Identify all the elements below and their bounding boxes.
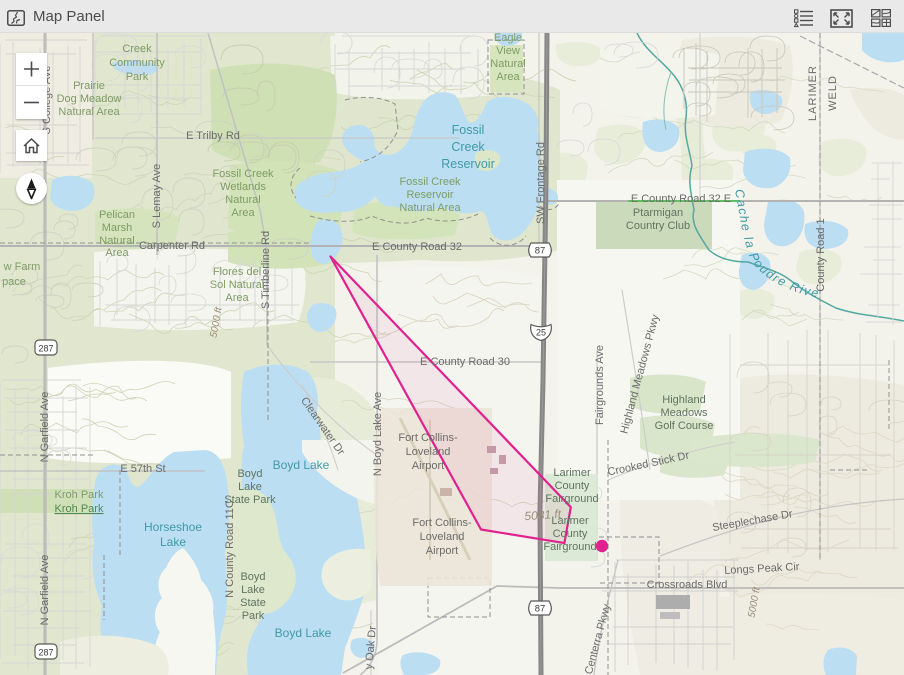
svg-text:Boyd: Boyd bbox=[237, 468, 262, 480]
svg-text:N Garfield Ave: N Garfield Ave bbox=[39, 392, 51, 463]
svg-text:Carpenter Rd: Carpenter Rd bbox=[139, 240, 205, 252]
svg-text:Community: Community bbox=[109, 57, 165, 69]
svg-text:E 57th St: E 57th St bbox=[120, 463, 165, 475]
svg-text:Kroh Park: Kroh Park bbox=[55, 489, 104, 501]
svg-text:Fairgrounds Ave: Fairgrounds Ave bbox=[594, 345, 606, 425]
svg-text:Prairie: Prairie bbox=[73, 80, 105, 92]
svg-text:State: State bbox=[240, 597, 266, 609]
svg-text:Fort Collins-: Fort Collins- bbox=[398, 432, 458, 444]
svg-text:Reservoir: Reservoir bbox=[406, 189, 453, 201]
svg-text:Area: Area bbox=[496, 71, 520, 83]
svg-text:287: 287 bbox=[38, 648, 53, 658]
svg-text:Larimer: Larimer bbox=[553, 467, 591, 479]
svg-text:87: 87 bbox=[535, 604, 546, 615]
svg-text:Natural Area: Natural Area bbox=[58, 106, 120, 118]
svg-text:Park: Park bbox=[242, 610, 265, 622]
svg-text:S Lemay Ave: S Lemay Ave bbox=[151, 164, 163, 229]
svg-text:SW Frontage Rd: SW Frontage Rd bbox=[535, 142, 547, 224]
svg-text:WELD: WELD bbox=[827, 75, 839, 111]
svg-text:Fossil Creek: Fossil Creek bbox=[399, 176, 461, 188]
svg-text:Flores del: Flores del bbox=[213, 266, 261, 278]
svg-text:Creek: Creek bbox=[451, 140, 485, 154]
svg-text:View: View bbox=[496, 45, 520, 57]
svg-text:Area: Area bbox=[231, 207, 255, 219]
svg-text:County Road 1: County Road 1 bbox=[815, 218, 827, 291]
svg-text:N County Road 11C: N County Road 11C bbox=[224, 500, 236, 598]
svg-text:Country Club: Country Club bbox=[626, 220, 690, 232]
svg-text:Airport: Airport bbox=[412, 460, 444, 472]
svg-text:Horseshoe: Horseshoe bbox=[144, 520, 202, 534]
svg-text:Crossroads Blvd: Crossroads Blvd bbox=[647, 579, 728, 591]
svg-text:County: County bbox=[553, 528, 588, 540]
svg-text:Ptarmigan: Ptarmigan bbox=[633, 207, 683, 219]
svg-text:E Trilby Rd: E Trilby Rd bbox=[186, 130, 240, 142]
svg-text:Golf Course: Golf Course bbox=[655, 420, 714, 432]
svg-text:Loveland: Loveland bbox=[406, 446, 451, 458]
svg-text:N Boyd Lake Ave: N Boyd Lake Ave bbox=[372, 392, 384, 476]
svg-text:Wetlands: Wetlands bbox=[220, 181, 266, 193]
svg-text:N Garfield Ave: N Garfield Ave bbox=[39, 555, 51, 626]
svg-text:S Timberline Rd: S Timberline Rd bbox=[260, 231, 272, 309]
svg-text:Fairground: Fairground bbox=[543, 541, 596, 553]
svg-text:Natural Area: Natural Area bbox=[399, 202, 461, 214]
svg-text:Natural: Natural bbox=[225, 194, 260, 206]
svg-text:Lake: Lake bbox=[238, 481, 262, 493]
svg-text:Fairground: Fairground bbox=[545, 493, 598, 505]
svg-text:E County Road 32 E: E County Road 32 E bbox=[631, 193, 731, 205]
svg-text:Boyd Lake: Boyd Lake bbox=[273, 458, 330, 472]
svg-text:Fort Collins-: Fort Collins- bbox=[412, 517, 472, 529]
svg-text:Fossil: Fossil bbox=[452, 123, 485, 137]
svg-text:Boyd Lake: Boyd Lake bbox=[275, 626, 332, 640]
svg-text:Eagle: Eagle bbox=[494, 33, 522, 44]
svg-text:E County Road 32: E County Road 32 bbox=[372, 241, 462, 253]
svg-text:Meadows: Meadows bbox=[660, 407, 708, 419]
svg-text:25: 25 bbox=[536, 328, 546, 338]
svg-text:Lake: Lake bbox=[160, 535, 186, 549]
svg-text:Pelican: Pelican bbox=[99, 209, 135, 221]
svg-text:Fossil Creek: Fossil Creek bbox=[212, 168, 274, 180]
svg-text:Reservoir: Reservoir bbox=[441, 157, 495, 171]
svg-text:87: 87 bbox=[535, 246, 546, 257]
svg-text:Creek: Creek bbox=[122, 43, 152, 55]
svg-text:Area: Area bbox=[105, 247, 129, 259]
svg-text:Highland: Highland bbox=[662, 394, 705, 406]
svg-text:Kroh Park: Kroh Park bbox=[55, 503, 104, 515]
svg-text:Boyd: Boyd bbox=[240, 571, 265, 583]
svg-text:Park: Park bbox=[126, 71, 149, 83]
svg-text:County: County bbox=[555, 480, 590, 492]
svg-text:pace: pace bbox=[2, 276, 26, 288]
svg-text:LARIMER: LARIMER bbox=[807, 65, 819, 121]
svg-text:E County Road 30: E County Road 30 bbox=[420, 356, 510, 368]
svg-text:Natural: Natural bbox=[99, 235, 134, 247]
svg-text:Area: Area bbox=[225, 292, 249, 304]
svg-text:Airport: Airport bbox=[426, 545, 458, 557]
svg-text:Natural: Natural bbox=[490, 58, 525, 70]
svg-text:w Farm: w Farm bbox=[3, 261, 41, 273]
svg-text:Marsh: Marsh bbox=[102, 222, 133, 234]
svg-text:Dog Meadow: Dog Meadow bbox=[57, 93, 122, 105]
svg-text:Lake: Lake bbox=[241, 584, 265, 596]
svg-text:Sol Natural: Sol Natural bbox=[210, 279, 264, 291]
svg-text:Loveland: Loveland bbox=[420, 531, 465, 543]
svg-text:287: 287 bbox=[38, 344, 53, 354]
svg-text:5081 ft: 5081 ft bbox=[524, 507, 562, 524]
